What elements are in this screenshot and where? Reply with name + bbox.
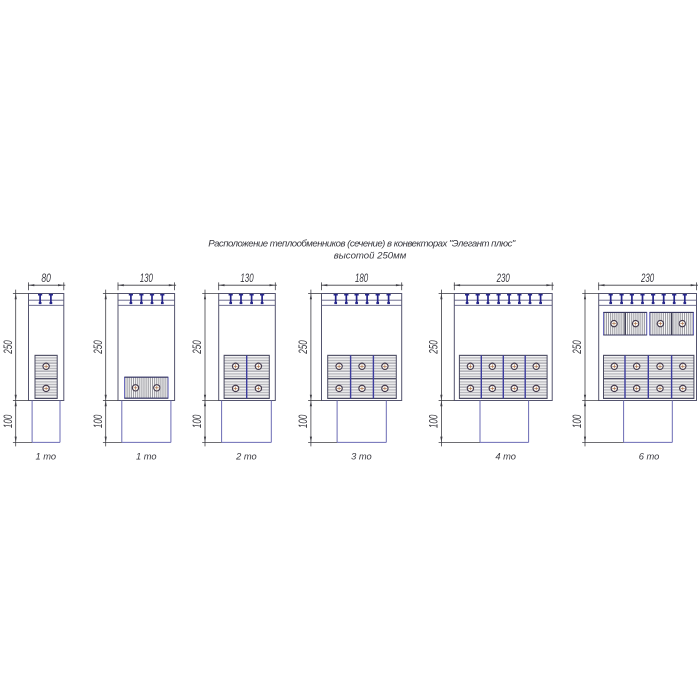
svg-text:130: 130 bbox=[140, 271, 153, 285]
svg-text:100: 100 bbox=[570, 414, 584, 428]
svg-text:3 то: 3 то bbox=[351, 451, 372, 461]
svg-text:100: 100 bbox=[190, 414, 204, 428]
svg-text:230: 230 bbox=[496, 271, 510, 285]
svg-text:80: 80 bbox=[41, 271, 51, 285]
svg-text:100: 100 bbox=[427, 414, 441, 428]
svg-text:180: 180 bbox=[355, 271, 368, 285]
svg-text:250: 250 bbox=[570, 340, 584, 354]
svg-text:100: 100 bbox=[1, 414, 15, 428]
svg-text:4 то: 4 то bbox=[495, 451, 516, 461]
svg-text:высотой 250мм: высотой 250мм bbox=[334, 251, 407, 262]
svg-text:1 то: 1 то bbox=[136, 451, 157, 461]
svg-text:100: 100 bbox=[91, 414, 105, 428]
svg-text:6 то: 6 то bbox=[639, 451, 660, 461]
svg-text:230: 230 bbox=[640, 271, 654, 285]
svg-text:250: 250 bbox=[190, 340, 204, 354]
svg-text:Расположение теплообменников (: Расположение теплообменников (сечение) в… bbox=[208, 239, 516, 250]
svg-text:250: 250 bbox=[91, 340, 105, 354]
svg-text:250: 250 bbox=[1, 340, 15, 354]
svg-text:250: 250 bbox=[427, 340, 441, 354]
svg-text:2 то: 2 то bbox=[235, 451, 257, 461]
svg-text:130: 130 bbox=[240, 271, 253, 285]
svg-text:250: 250 bbox=[296, 340, 310, 354]
svg-text:100: 100 bbox=[296, 414, 310, 428]
svg-text:1 то: 1 то bbox=[36, 451, 57, 461]
